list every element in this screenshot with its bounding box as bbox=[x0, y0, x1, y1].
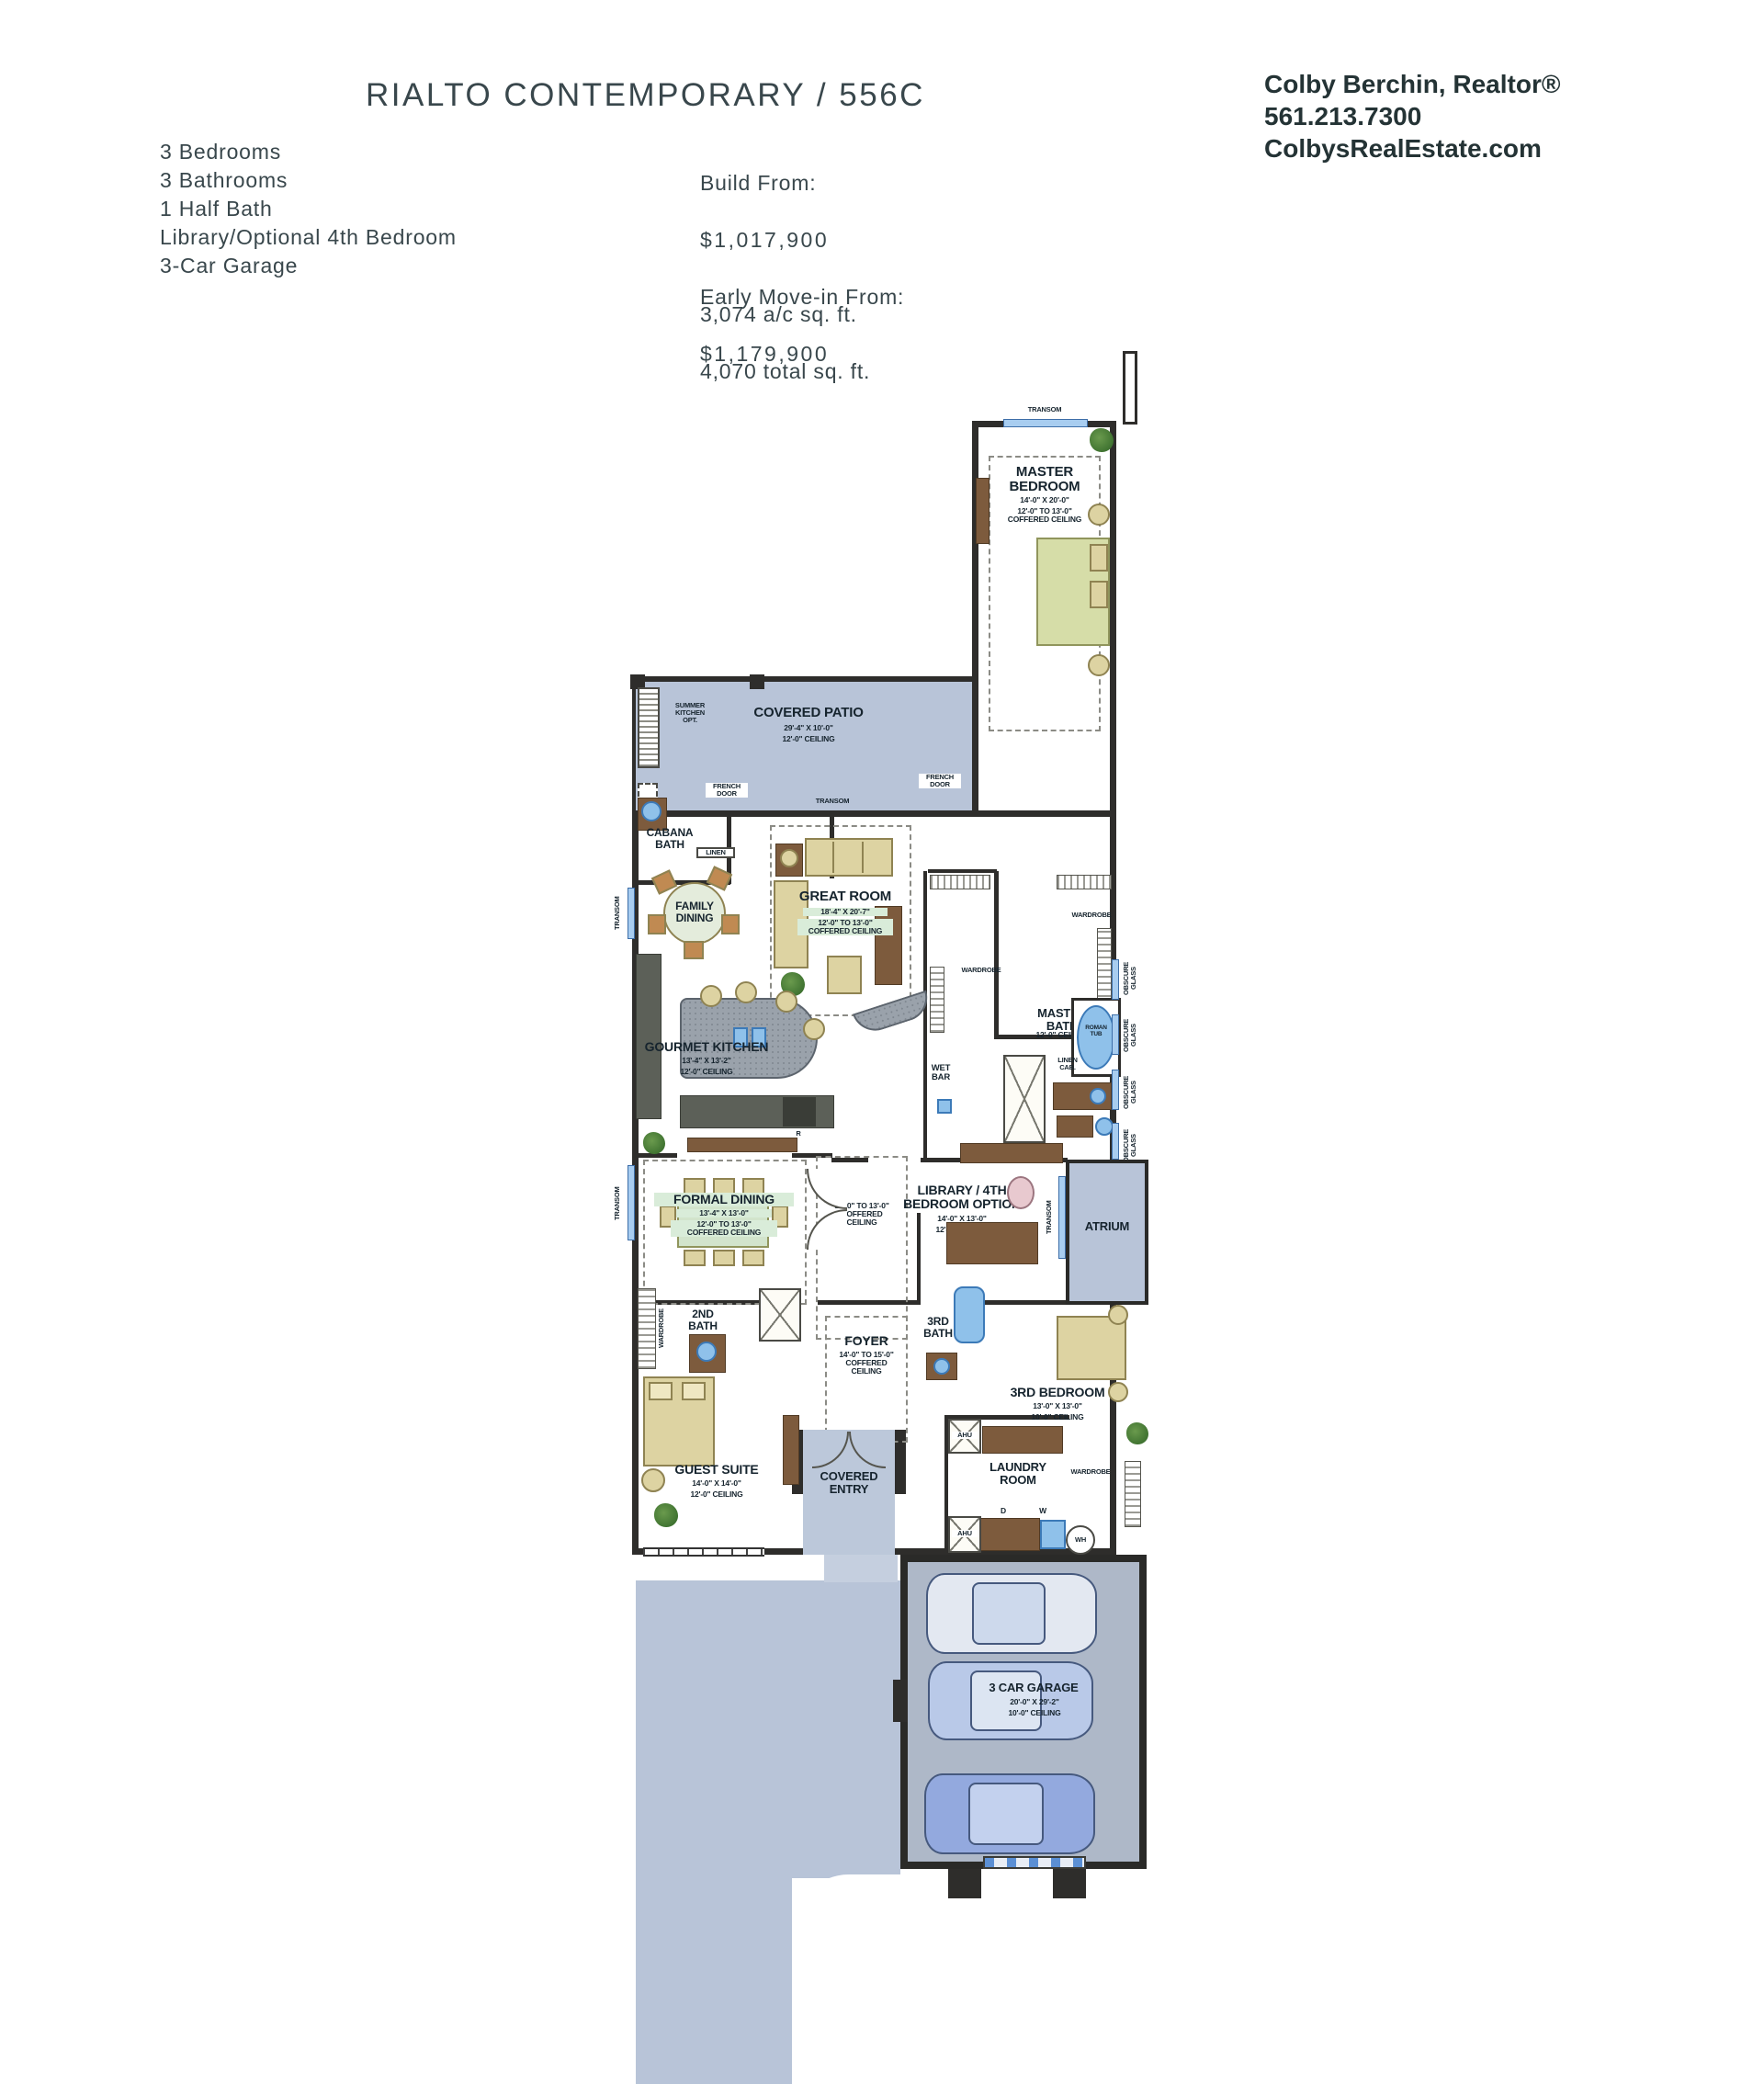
third-bedroom-dims: 13'-0" X 13'-0" bbox=[998, 1402, 1117, 1410]
covered-patio-ceiling: 12'-0" CEILING bbox=[735, 735, 882, 743]
pillow-icon bbox=[649, 1382, 673, 1400]
garage-door bbox=[983, 1856, 1086, 1869]
patio-post bbox=[750, 674, 764, 689]
vanity-icon bbox=[1057, 1115, 1093, 1138]
wardrobe-shelves bbox=[638, 1288, 656, 1369]
plant-icon bbox=[643, 1132, 665, 1154]
wall bbox=[994, 871, 999, 1038]
formal-dining-ceiling: 12'-0" TO 13'-0" COFFERED CEILING bbox=[671, 1220, 777, 1237]
master-bedroom-ceiling: 12'-0" TO 13'-0" COFFERED CEILING bbox=[985, 507, 1104, 524]
guest-suite-label: GUEST SUITE bbox=[661, 1463, 772, 1477]
transom-label: TRANSOM bbox=[614, 884, 621, 943]
linen-cab-label: LINEN CAB. bbox=[1047, 1057, 1088, 1071]
dresser-icon bbox=[976, 478, 989, 544]
wet-bar-label: WET BAR bbox=[919, 1064, 963, 1082]
guest-suite-dims: 14'-0" X 14'-0" bbox=[661, 1479, 772, 1488]
entry-walkway bbox=[824, 1555, 898, 1582]
car-cabin bbox=[972, 1582, 1046, 1645]
plant-icon bbox=[1090, 428, 1114, 452]
driveway bbox=[636, 1580, 900, 1878]
wardrobe-label: WARDROBE bbox=[955, 967, 1007, 974]
chair-icon bbox=[742, 1250, 764, 1266]
third-bedroom-label: 3RD BEDROOM bbox=[998, 1386, 1117, 1399]
driveway-notch bbox=[792, 1874, 902, 2086]
foyer-label: FOYER bbox=[827, 1334, 906, 1348]
desk-chair-icon bbox=[1007, 1176, 1035, 1209]
range-label: R bbox=[792, 1130, 805, 1138]
obscure-glass-label: OBSCURE GLASS bbox=[1123, 1066, 1137, 1119]
obscure-glass-window bbox=[1112, 1070, 1119, 1110]
roman-tub-label: ROMAN TUB bbox=[1077, 1025, 1115, 1038]
gourmet-kitchen-ceiling: 12'-0" CEILING bbox=[638, 1068, 775, 1076]
garage-ceiling: 10'-0" CEILING bbox=[979, 1709, 1090, 1717]
obscure-glass-label: OBSCURE GLASS bbox=[1123, 952, 1137, 1005]
formal-dining-dims: 13'-4" X 13'-0" bbox=[676, 1209, 772, 1217]
sink-icon bbox=[696, 1342, 717, 1362]
lamp-icon bbox=[780, 849, 798, 867]
great-room-dims: 18'-4" X 20'-7" bbox=[803, 908, 888, 916]
console-icon bbox=[783, 1415, 799, 1485]
cabana-tub-icon bbox=[641, 801, 661, 821]
wardrobe-shelves bbox=[930, 967, 944, 1033]
plant-icon bbox=[654, 1503, 678, 1527]
garage-post bbox=[1053, 1869, 1086, 1898]
nightstand-icon bbox=[1108, 1305, 1128, 1325]
french-door-label: FRENCH DOOR bbox=[919, 774, 961, 788]
master-bedroom-label: MASTER BEDROOM bbox=[985, 465, 1104, 494]
wardrobe-shelves bbox=[1125, 1461, 1141, 1527]
ahu-label: AHU bbox=[952, 1432, 978, 1439]
pillow-icon bbox=[1090, 544, 1108, 572]
great-room-label: GREAT ROOM bbox=[788, 889, 902, 904]
wall bbox=[928, 869, 997, 873]
bed-icon bbox=[1057, 1316, 1126, 1380]
nightstand-icon bbox=[1088, 504, 1110, 526]
transom-window bbox=[1003, 419, 1088, 427]
shower-icon bbox=[1003, 1055, 1046, 1143]
family-dining-label: FAMILY DINING bbox=[663, 900, 726, 923]
stool-icon bbox=[735, 981, 757, 1003]
obscure-glass-window bbox=[1112, 1123, 1119, 1160]
gourmet-kitchen-label: GOURMET KITCHEN bbox=[638, 1040, 775, 1054]
cabana-bath-label: CABANA BATH bbox=[638, 827, 702, 850]
great-room-ceiling: 12'-0" TO 13'-0" COFFERED CEILING bbox=[797, 919, 893, 935]
pillow-icon bbox=[682, 1382, 706, 1400]
linen-label: LINEN bbox=[696, 847, 735, 858]
garage-post bbox=[948, 1869, 981, 1898]
window-strip bbox=[643, 1547, 764, 1557]
dryer-label: D bbox=[998, 1507, 1009, 1515]
sink-icon bbox=[933, 1358, 950, 1375]
desk-icon bbox=[946, 1222, 1038, 1264]
laundry-counter-icon bbox=[972, 1518, 1040, 1551]
obscure-glass-window bbox=[1112, 959, 1119, 1000]
transom-label: TRANSOM bbox=[805, 798, 860, 805]
summer-kitchen-label: SUMMER KITCHEN OPT. bbox=[661, 702, 718, 724]
stool-icon bbox=[775, 991, 797, 1013]
wardrobe-label: WARDROBE bbox=[1068, 912, 1115, 919]
covered-entry-label: COVERED ENTRY bbox=[805, 1470, 893, 1496]
foyer-ceiling: 14'-0" TO 15'-0" COFFERED CEILING bbox=[827, 1351, 906, 1376]
formal-dining-label: FORMAL DINING bbox=[654, 1193, 794, 1206]
plant-icon bbox=[1126, 1422, 1148, 1444]
sink-icon bbox=[1095, 1117, 1114, 1136]
second-bath-label: 2ND BATH bbox=[675, 1308, 730, 1331]
master-bedroom-dims: 14'-0" X 20'-0" bbox=[985, 496, 1104, 504]
range-icon bbox=[783, 1097, 816, 1127]
chair-icon bbox=[684, 1250, 706, 1266]
sofa-icon bbox=[805, 838, 893, 877]
shower-icon bbox=[759, 1288, 801, 1342]
ahu-label: AHU bbox=[952, 1530, 978, 1537]
bar-sink-icon bbox=[937, 1099, 952, 1114]
transom-label: TRANSOM bbox=[614, 1174, 621, 1233]
wardrobe-shelves bbox=[930, 875, 990, 889]
transom-window bbox=[1058, 1176, 1066, 1259]
washer-icon bbox=[1040, 1520, 1066, 1549]
pillow-icon bbox=[1090, 581, 1108, 608]
nightstand-icon bbox=[1088, 654, 1110, 676]
transom-window bbox=[628, 1165, 635, 1240]
obscure-glass-window bbox=[1112, 1014, 1119, 1055]
media-console-icon bbox=[875, 906, 902, 985]
sofa-seam bbox=[862, 842, 864, 873]
wall bbox=[923, 871, 927, 1160]
laundry-counter-icon bbox=[982, 1426, 1063, 1454]
atrium-label: ATRIUM bbox=[1069, 1220, 1145, 1233]
stool-icon bbox=[700, 985, 722, 1007]
floor-plan: COVERED PATIO 29'-4" X 10'-0" 12'-0" CEI… bbox=[0, 0, 1764, 2095]
obscure-glass-label: OBSCURE GLASS bbox=[1123, 1009, 1137, 1062]
summer-kitchen-grill-icon bbox=[638, 687, 660, 768]
guest-suite-ceiling: 12'-0" CEILING bbox=[661, 1490, 772, 1499]
bathtub-icon bbox=[954, 1286, 985, 1343]
garage-label: 3 CAR GARAGE bbox=[965, 1682, 1102, 1694]
wardrobe-label: WARDROBE bbox=[1066, 1468, 1115, 1476]
chair-icon bbox=[684, 941, 704, 959]
sink-icon bbox=[1090, 1088, 1106, 1104]
covered-patio bbox=[632, 676, 972, 812]
chair-icon bbox=[713, 1250, 735, 1266]
bookcase-icon bbox=[960, 1143, 1063, 1163]
laundry-label: LAUNDRY ROOM bbox=[967, 1461, 1069, 1487]
gourmet-kitchen-dims: 13'-4" X 13'-2" bbox=[638, 1057, 775, 1065]
wh-label: WH bbox=[1066, 1536, 1095, 1544]
driveway-strip bbox=[636, 1874, 792, 2084]
garage-wall-notch bbox=[893, 1680, 908, 1722]
wardrobe-shelves bbox=[1057, 875, 1112, 889]
roof-line bbox=[1123, 351, 1137, 425]
transom-window bbox=[628, 888, 635, 939]
french-door-label: FRENCH DOOR bbox=[706, 783, 748, 798]
transom-label: TRANSOM bbox=[1003, 406, 1086, 413]
kitchen-counter-icon bbox=[636, 954, 661, 1119]
garage-dims: 20'-0" X 29'-2" bbox=[979, 1698, 1090, 1706]
covered-patio-label: COVERED PATIO bbox=[726, 706, 891, 720]
washer-label: W bbox=[1036, 1507, 1049, 1515]
flyer-page: RIALTO CONTEMPORARY / 556C Colby Berchin… bbox=[0, 0, 1764, 2095]
covered-patio-dims: 29'-4" X 10'-0" bbox=[735, 724, 882, 732]
wardrobe-label: WARDROBE bbox=[658, 1294, 665, 1364]
third-bedroom-ceiling: 10'-0" CEILING bbox=[998, 1413, 1117, 1421]
sofa-seam bbox=[832, 842, 834, 873]
car-cabin bbox=[968, 1783, 1044, 1845]
buffet-icon bbox=[687, 1138, 797, 1152]
armchair-icon bbox=[827, 956, 862, 994]
stool-icon bbox=[803, 1018, 825, 1040]
transom-label: TRANSOM bbox=[1046, 1185, 1053, 1250]
